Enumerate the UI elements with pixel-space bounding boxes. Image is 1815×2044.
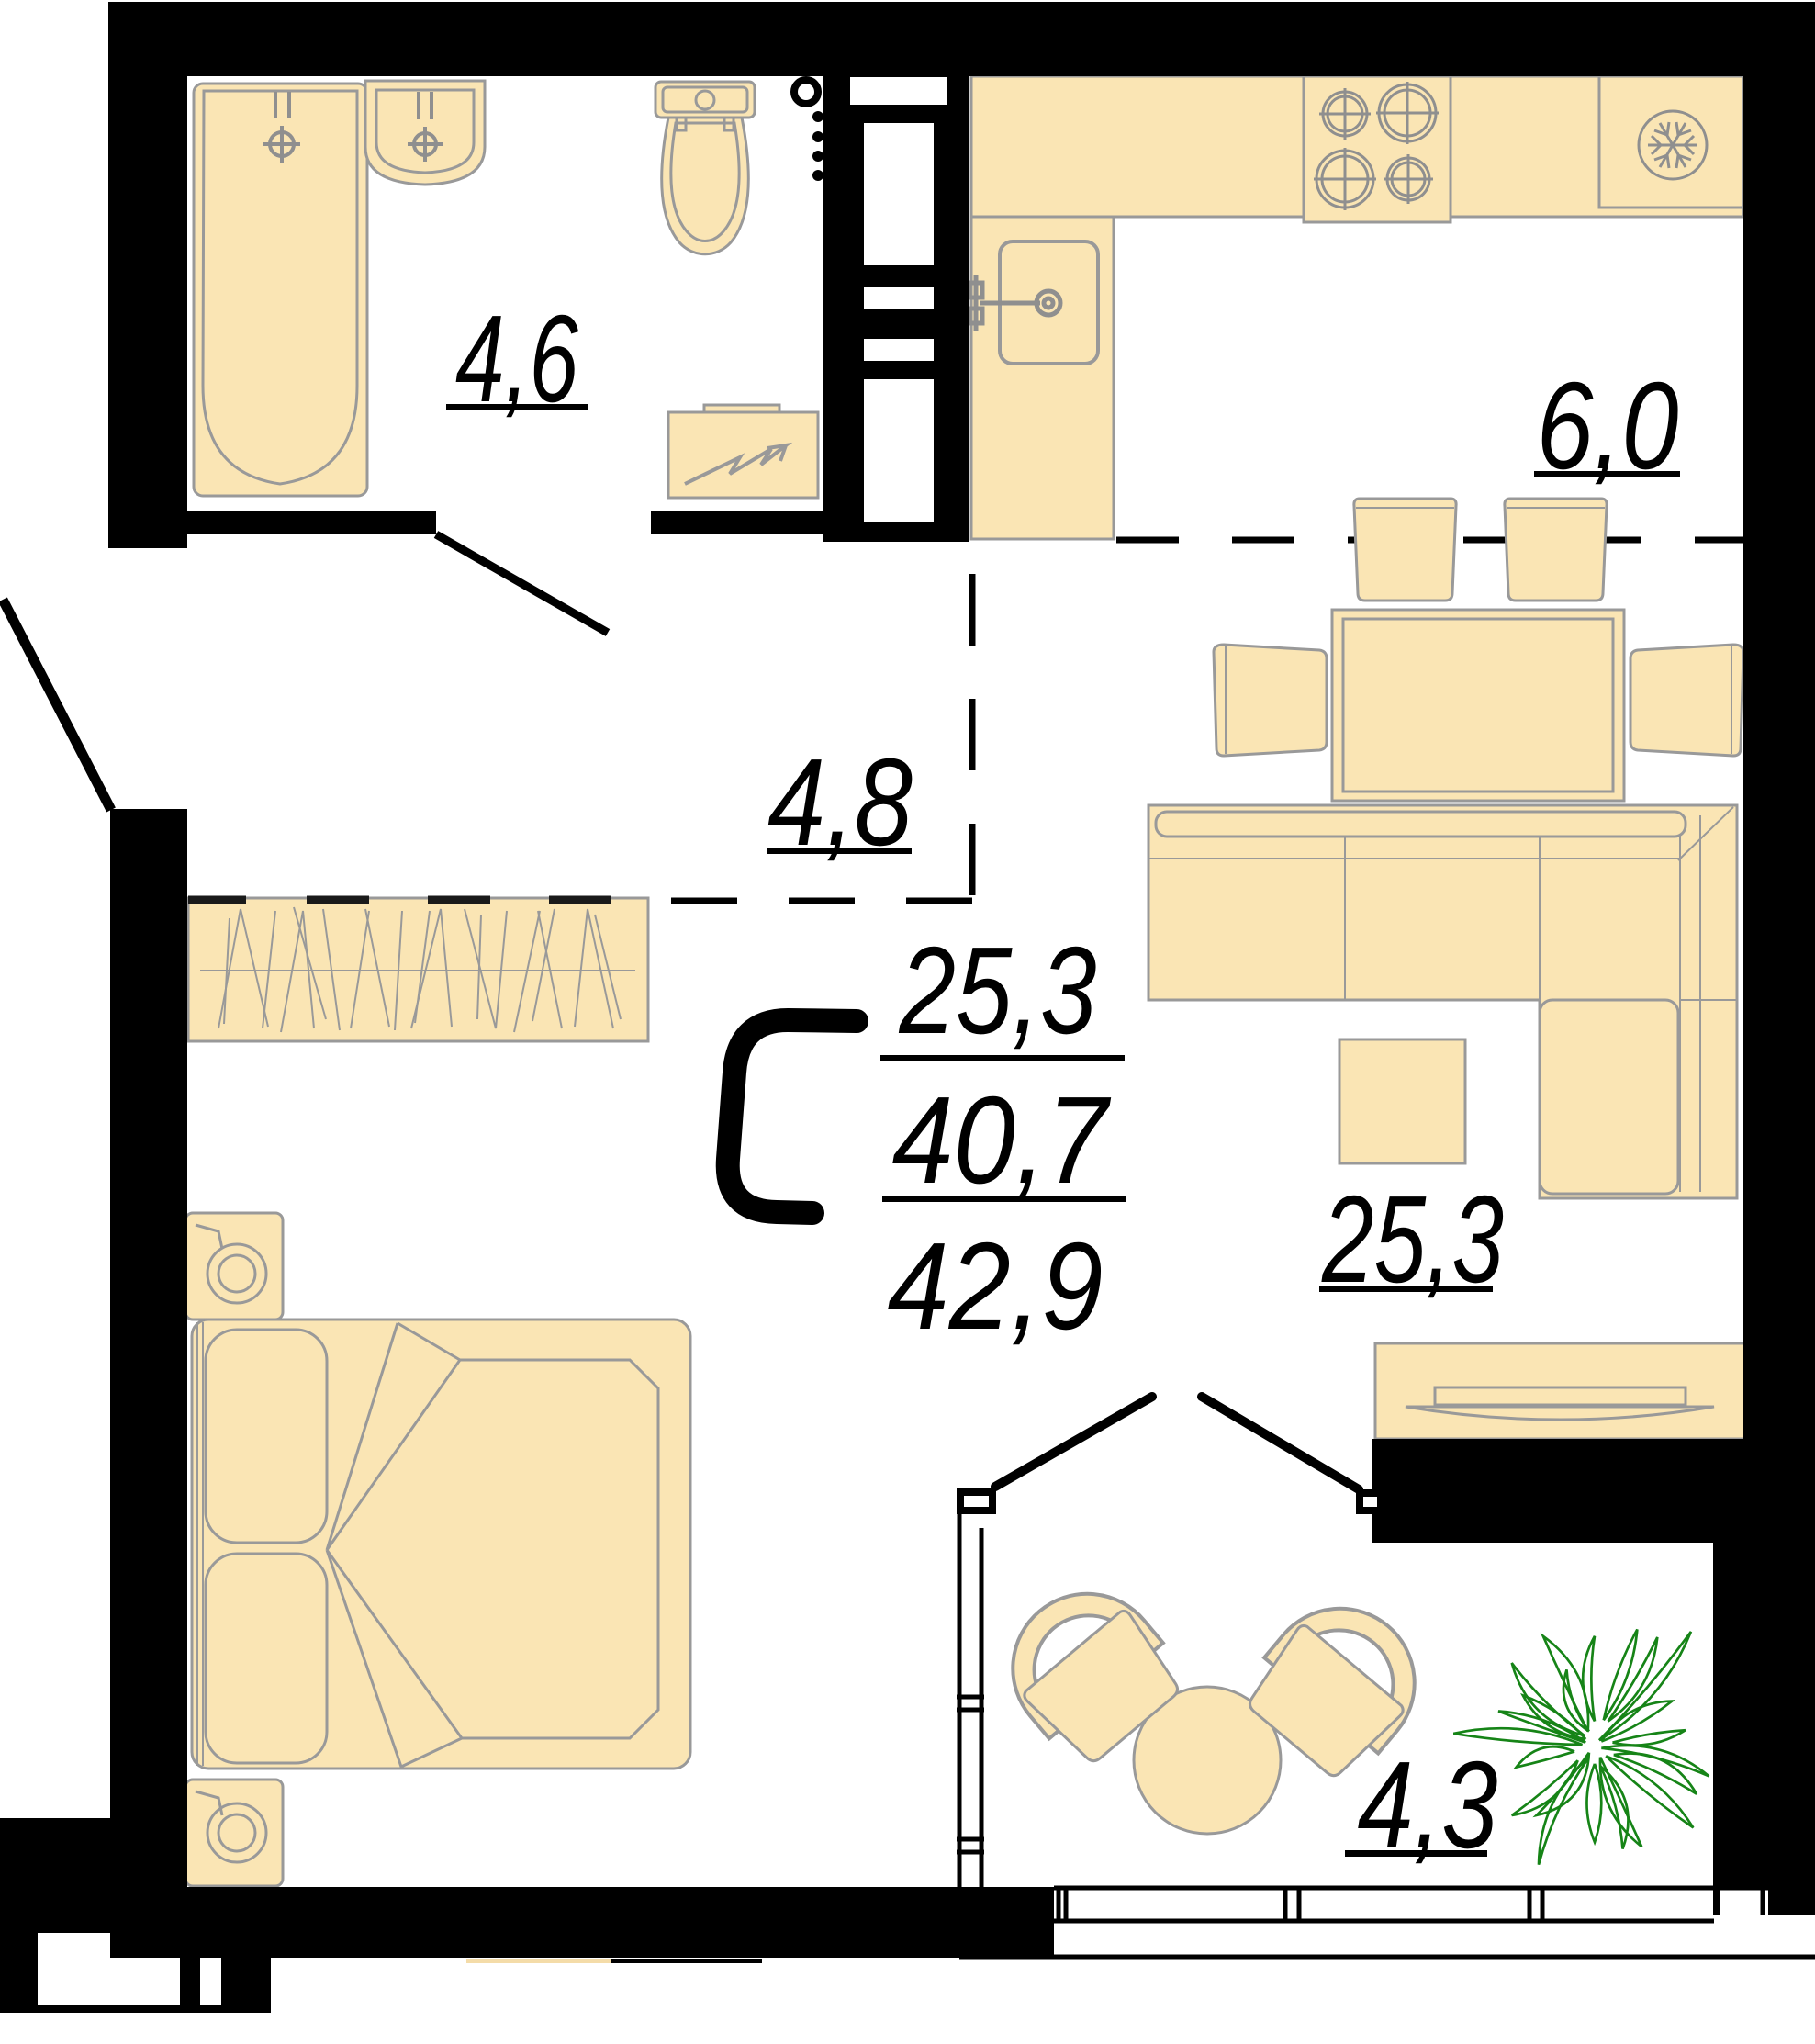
svg-text:40,7: 40,7 [892, 1071, 1112, 1209]
svg-text:42,9: 42,9 [888, 1217, 1104, 1355]
svg-text:25,3: 25,3 [899, 921, 1097, 1060]
